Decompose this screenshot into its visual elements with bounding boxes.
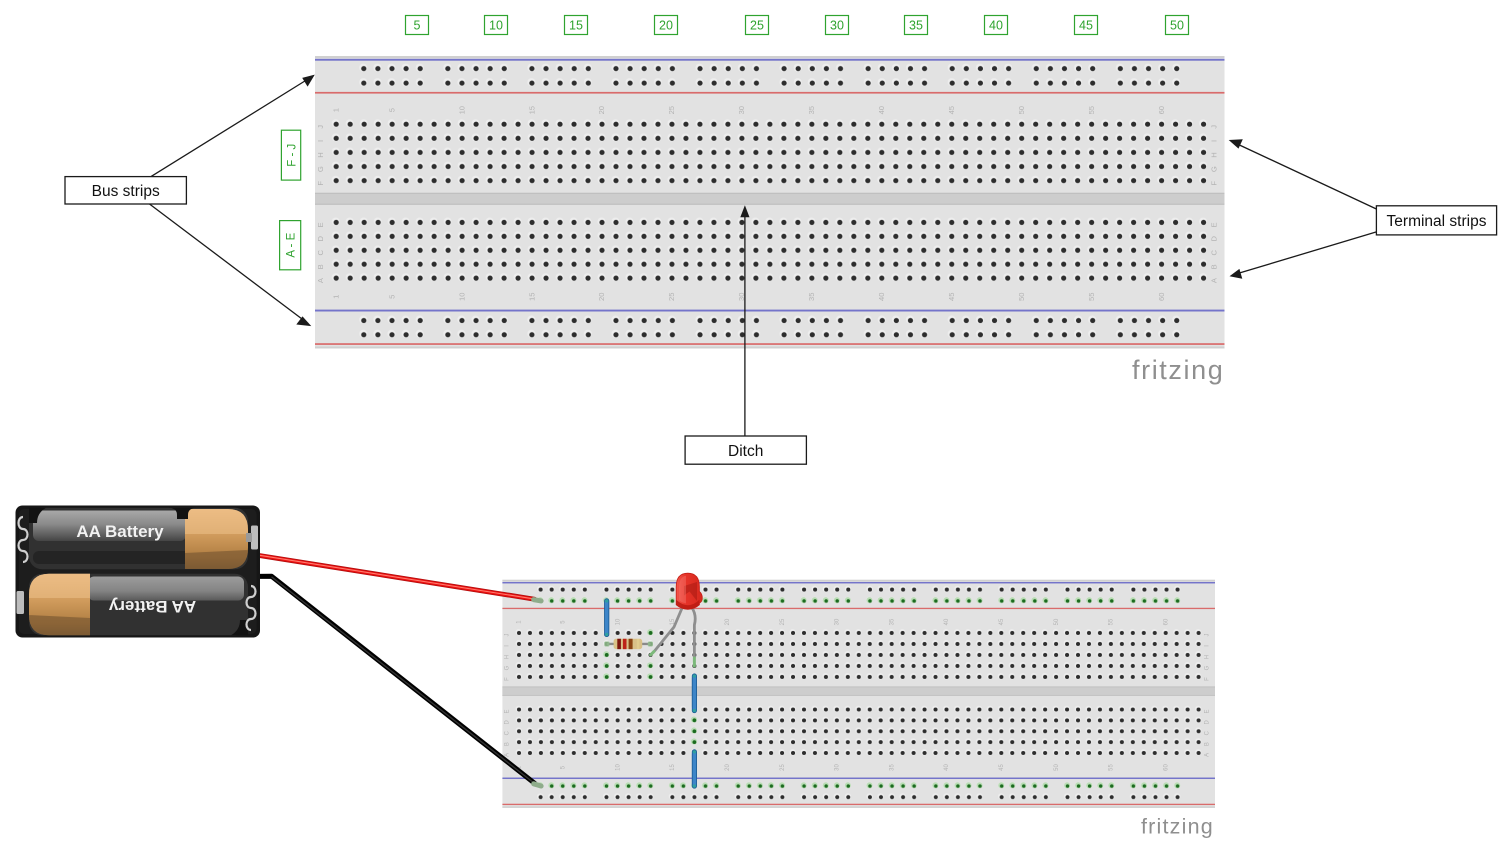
svg-text:fritzing: fritzing [1141,815,1214,839]
svg-text:5: 5 [414,19,421,33]
svg-text:Terminal strips: Terminal strips [1387,213,1487,230]
svg-text:Ditch: Ditch [728,443,763,460]
svg-text:50: 50 [1170,19,1184,33]
svg-text:AA Battery: AA Battery [76,522,164,541]
svg-text:A - E: A - E [286,232,298,257]
svg-text:35: 35 [909,19,923,33]
svg-text:15: 15 [569,19,583,33]
svg-text:F - J: F - J [287,144,299,167]
svg-text:Bus strips: Bus strips [92,183,160,200]
svg-text:AA Battery: AA Battery [108,597,196,616]
svg-text:20: 20 [659,19,673,33]
svg-text:25: 25 [750,19,764,33]
svg-text:30: 30 [830,19,844,33]
svg-text:fritzing: fritzing [1132,355,1224,385]
svg-text:10: 10 [489,19,503,33]
svg-text:45: 45 [1079,19,1093,33]
svg-text:40: 40 [989,19,1003,33]
